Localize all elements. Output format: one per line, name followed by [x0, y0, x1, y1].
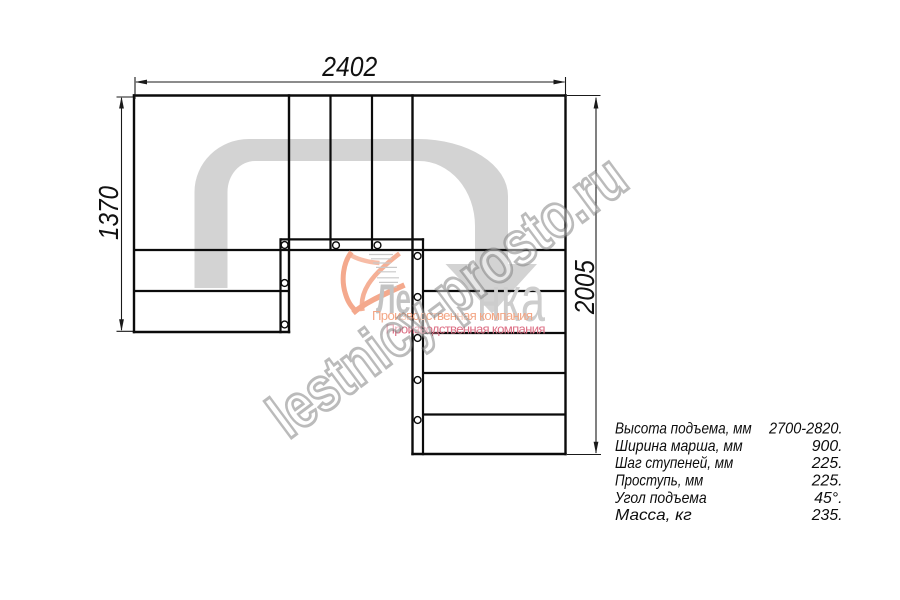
svg-text:2402: 2402	[321, 51, 377, 82]
svg-text:2700-2820.: 2700-2820.	[768, 421, 842, 438]
svg-text:45°.: 45°.	[814, 490, 842, 507]
svg-text:Шаг ступеней, мм: Шаг ступеней, мм	[615, 455, 733, 472]
svg-text:2005: 2005	[569, 260, 600, 315]
svg-text:Высота подъема, мм: Высота подъема, мм	[615, 421, 752, 438]
svg-text:225.: 225.	[811, 473, 843, 490]
svg-text:225.: 225.	[811, 455, 843, 472]
svg-text:900.: 900.	[812, 438, 843, 455]
svg-text:Проступь, мм: Проступь, мм	[615, 473, 703, 490]
svg-text:Ширина марша, мм: Ширина марша, мм	[615, 438, 743, 455]
svg-text:Масса, кг: Масса, кг	[615, 507, 692, 524]
svg-text:Угол подъема: Угол подъема	[614, 490, 707, 507]
svg-text:235.: 235.	[811, 507, 843, 524]
svg-text:1370: 1370	[93, 186, 124, 240]
